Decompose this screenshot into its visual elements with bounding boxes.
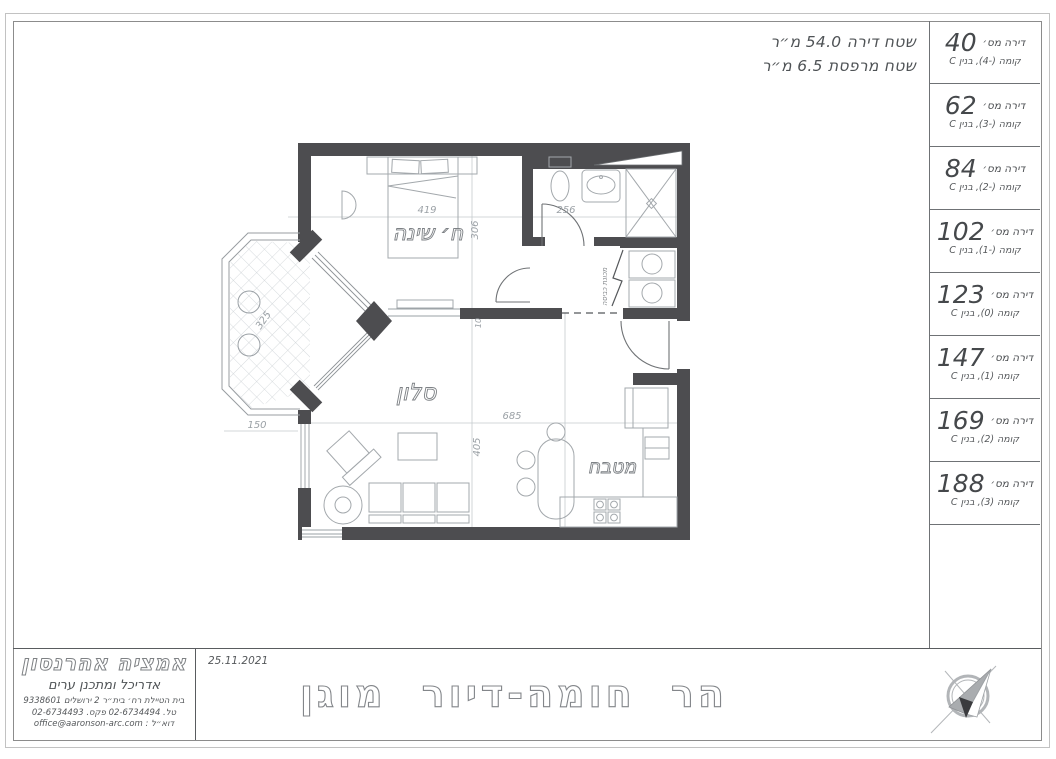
sofa-cushion: [369, 483, 401, 512]
dim-150: 150: [247, 420, 266, 431]
area-note: שטח דירה 54.0 מ״ר שטח מרפסת 6.5 מ״ר: [762, 30, 916, 78]
balcony-area-text: שטח מרפסת 6.5 מ״ר: [762, 54, 916, 78]
architect-block: אמציה אהרנסון אדריכל ומתכנן ערים בית הטי…: [13, 649, 196, 740]
apartment-row: דירה מס׳188 קומה (3), בנין C: [930, 462, 1040, 525]
dim-306: 306: [470, 220, 481, 239]
apt-num-label: דירה מס׳: [983, 163, 1026, 175]
coffee-table: [398, 433, 437, 460]
pillow: [421, 159, 449, 173]
bedroom-label: ח׳ שינה: [393, 221, 464, 245]
architect-name: אמציה אהרנסון: [21, 651, 187, 675]
apt-floor: קומה (2), בנין C: [930, 434, 1040, 445]
apartment-area-text: שטח דירה 54.0 מ״ר: [762, 30, 916, 54]
side-table: [324, 486, 362, 524]
headboard-shelf: [367, 157, 477, 174]
apt-num-label: דירה מס׳: [991, 289, 1034, 301]
apt-num-label: דירה מס׳: [983, 100, 1026, 112]
apartment-table: דירה מס׳40 קומה (-4), בנין C דירה מס׳62 …: [929, 21, 1040, 649]
dim-685: 685: [502, 411, 521, 422]
apt-num-label: דירה מס׳: [991, 352, 1034, 364]
apt-floor: קומה (3), בנין C: [930, 497, 1040, 508]
windows: [298, 321, 690, 540]
apt-num-label: דירה מס׳: [983, 37, 1026, 49]
floor-plan: 325 מכונת כביסה: [0, 0, 1056, 759]
apt-number: 62: [945, 93, 977, 118]
apartment-row: דירה מס׳40 קומה (-4), בנין C: [930, 21, 1040, 84]
apt-number: 84: [945, 156, 977, 181]
apartment-row: דירה מס׳169 קומה (2), בנין C: [930, 399, 1040, 462]
sofa-cushion: [437, 483, 469, 512]
washer-closet: [629, 251, 675, 307]
architect-address: בית הטיילת רח׳ בית״ר 2 ירושלים 9338601: [13, 696, 195, 708]
architect-email: דוא״ל : office@aaronson-arc.com: [13, 719, 195, 731]
chair: [547, 423, 565, 441]
dim-256: 256: [556, 205, 575, 216]
apt-num-label: דירה מס׳: [991, 226, 1034, 238]
chair: [517, 478, 535, 496]
dim-405: 405: [472, 437, 483, 456]
architect-phones: טל. 02-6734494 פקס. 02-6734493: [13, 708, 195, 720]
apt-number: 40: [945, 30, 977, 55]
pillow: [392, 159, 420, 173]
fridge: [625, 388, 668, 428]
north-arrow-icon: [893, 653, 1013, 741]
apartment-row: דירה מס׳62 קומה (-3), בנין C: [930, 84, 1040, 147]
stove: [594, 499, 620, 523]
apt-floor: קומה (-2), בנין C: [930, 182, 1040, 193]
walls: [298, 143, 690, 540]
sofa-cushion: [403, 483, 435, 512]
apartment-row: דירה מס׳147 קומה (1), בנין C: [930, 336, 1040, 399]
title-cell: 25.11.2021 הר חומה-דיור מוגן: [196, 649, 1041, 740]
drawing-sheet: 325 מכונת כביסה: [0, 0, 1056, 759]
armchair: [322, 427, 381, 486]
living-label: סלון: [396, 380, 438, 406]
apt-number: 147: [937, 345, 985, 370]
apartment-row: דירה מס׳123 קומה (0), בנין C: [930, 273, 1040, 336]
wall-lamp: [342, 191, 356, 219]
apt-number: 169: [937, 408, 985, 433]
toilet-bowl: [551, 171, 569, 201]
apt-number: 188: [937, 471, 985, 496]
chair: [517, 451, 535, 469]
apt-number: 123: [937, 282, 985, 307]
closet-bifold-door: [612, 250, 623, 306]
room-labels: ח׳ שינה סלון מטבח: [393, 221, 638, 478]
architect-name-art: אמציה אהרנסון: [14, 649, 195, 677]
dim-419: 419: [417, 205, 436, 216]
apt-num-label: דירה מס׳: [991, 478, 1034, 490]
dim-10: 10: [474, 318, 483, 328]
project-title: הר חומה-דיור מוגן: [300, 672, 728, 716]
apt-floor: קומה (1), בנין C: [930, 371, 1040, 382]
bed: [388, 174, 458, 258]
apt-number: 102: [937, 219, 985, 244]
washer-label: מכונת כביסה: [601, 267, 609, 306]
apt-num-label: דירה מס׳: [991, 415, 1034, 427]
apartment-row: דירה מס׳84 קומה (-2), בנין C: [930, 147, 1040, 210]
architect-role: אדריכל ומתכנן ערים: [13, 678, 195, 693]
apt-floor: קומה (-3), בנין C: [930, 119, 1040, 130]
room-divider: [388, 309, 460, 316]
living-furniture: [322, 427, 469, 524]
title-strip: אמציה אהרנסון אדריכל ומתכנן ערים בית הטי…: [13, 648, 1041, 739]
kitchen-label: מטבח: [588, 456, 638, 478]
empty-table-cell: [930, 525, 1040, 649]
dining-table: [538, 439, 574, 519]
bench: [397, 300, 453, 308]
apartment-row: דירה מס׳102 קומה (-1), בנין C: [930, 210, 1040, 273]
apt-floor: קומה (0), בנין C: [930, 308, 1040, 319]
bay-window: 325: [220, 230, 392, 417]
apt-floor: קומה (-4), בנין C: [930, 56, 1040, 67]
sink-counter: [582, 170, 620, 202]
apt-floor: קומה (-1), בנין C: [930, 245, 1040, 256]
